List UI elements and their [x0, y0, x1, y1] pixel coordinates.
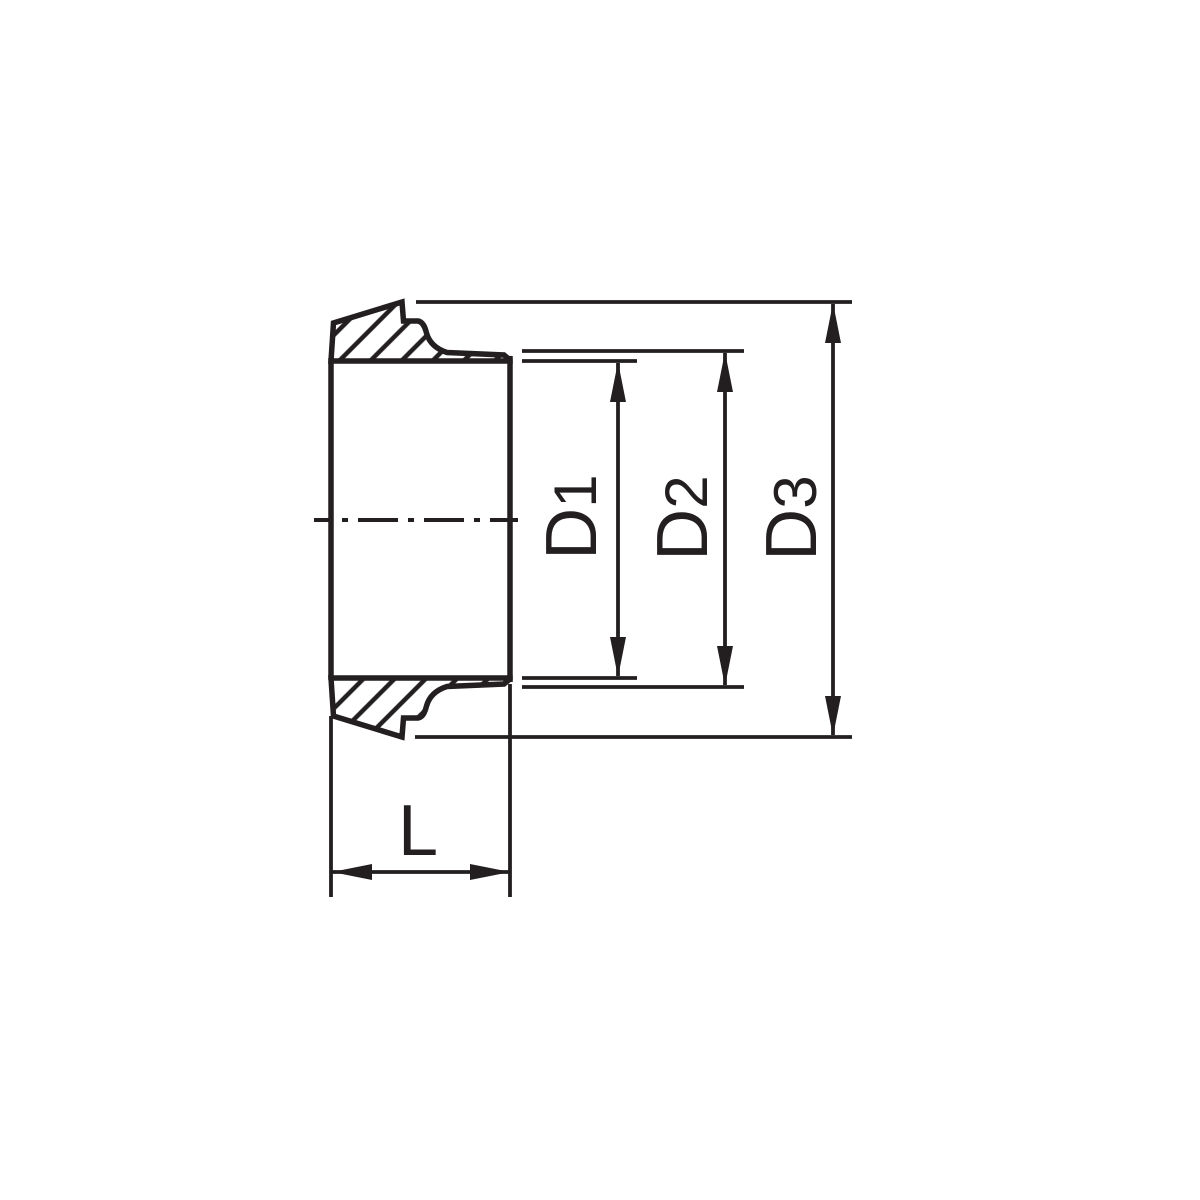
d3-arrowhead-top [825, 303, 841, 343]
d2-label: D2 [643, 475, 723, 560]
length-label: L [398, 791, 438, 871]
fitting-section-diagram: D1 D2 D3 L [0, 0, 1200, 1200]
d2-arrowhead-top [717, 352, 733, 392]
d1-label: D1 [532, 474, 612, 559]
d3-arrowhead-bottom [825, 696, 841, 736]
l-arrowhead-right [470, 864, 510, 880]
l-arrowhead-left [332, 864, 372, 880]
technical-drawing-canvas: D1 D2 D3 L [0, 0, 1200, 1200]
d3-label: D3 [752, 475, 832, 560]
d2-arrowhead-bottom [717, 646, 733, 686]
upper-flange-section [331, 302, 510, 361]
d1-arrowhead-top [610, 362, 626, 402]
d1-arrowhead-bottom [610, 637, 626, 677]
lower-flange-section [331, 678, 510, 737]
